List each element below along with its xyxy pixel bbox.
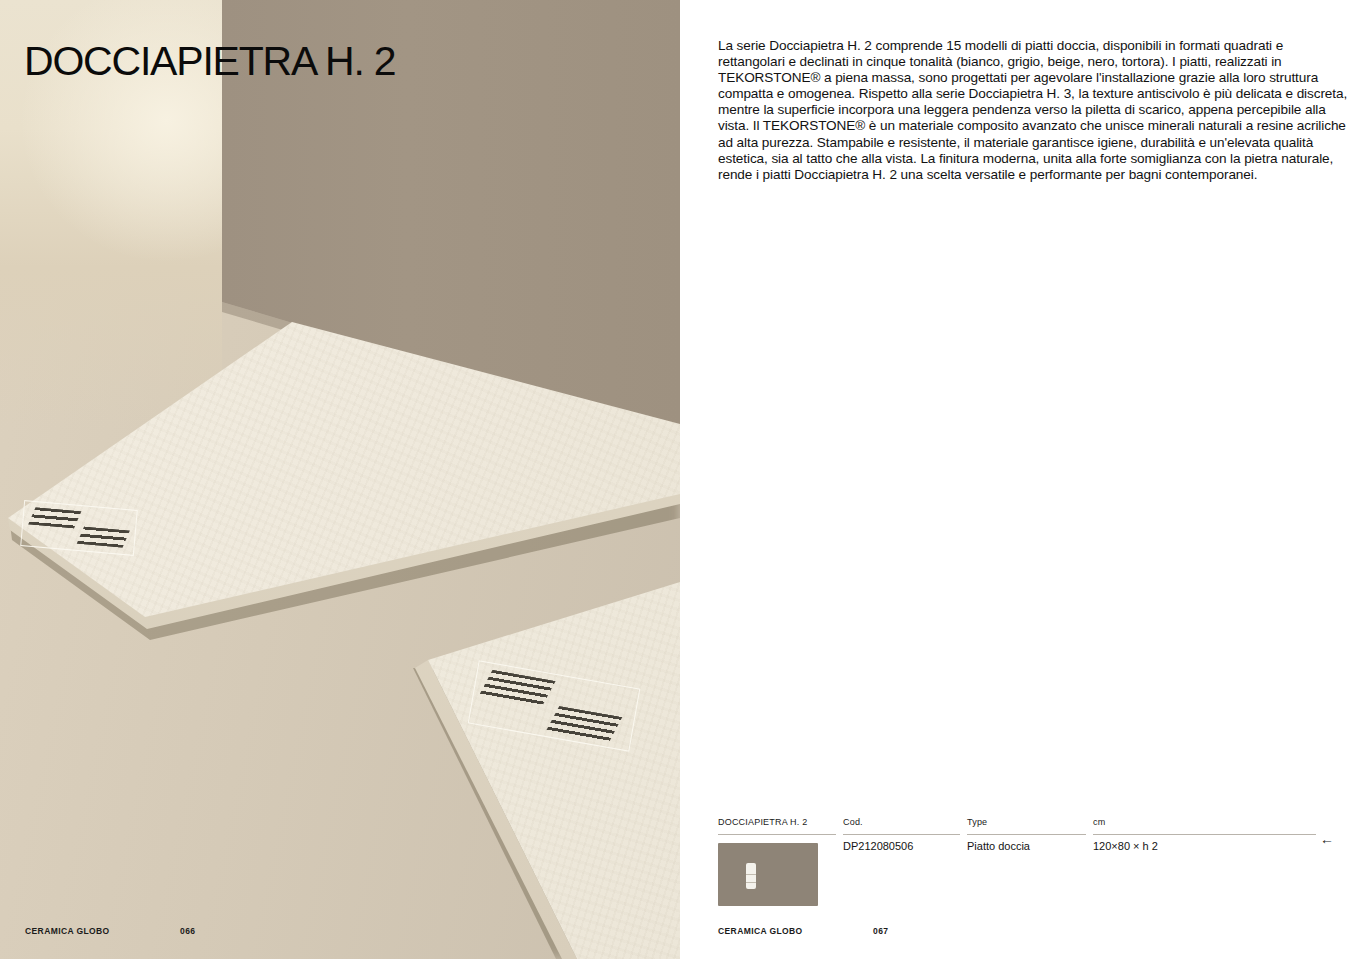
table-header-row: DOCCIAPIETRA H. 2 Cod. Type cm — [718, 817, 1316, 835]
product-table: DOCCIAPIETRA H. 2 Cod. Type cm DP2120805… — [718, 817, 1316, 852]
shower-room-photo — [0, 0, 680, 959]
page-number: 067 — [873, 926, 888, 936]
page-number: 066 — [180, 926, 195, 936]
drain-grate-1-icon — [20, 500, 138, 556]
drain-slats — [546, 706, 622, 741]
product-size: 120×80 × h 2 — [1093, 840, 1316, 852]
footer-right: CERAMICA GLOBO 067 — [718, 926, 803, 936]
series-description: La serie Docciapietra H. 2 comprende 15 … — [718, 38, 1350, 183]
drain-slats — [480, 670, 556, 705]
table-row: DP212080506 Piatto doccia 120×80 × h 2 — [718, 840, 1316, 852]
col-header-cod: Cod. — [843, 817, 960, 835]
swatch-cell — [718, 840, 836, 852]
brand-name: CERAMICA GLOBO — [25, 926, 110, 936]
page-title: DOCCIAPIETRA H. 2 — [24, 39, 395, 84]
drain-slats — [28, 507, 81, 528]
col-header-type: Type — [967, 817, 1086, 835]
back-arrow-icon[interactable]: ← — [1320, 832, 1334, 846]
product-swatch — [718, 843, 818, 906]
swatch-drain-icon — [746, 863, 756, 889]
footer-left: CERAMICA GLOBO 066 — [25, 926, 110, 936]
drain-slats — [77, 526, 130, 547]
col-header-cm: cm — [1093, 817, 1316, 835]
catalog-spread: DOCCIAPIETRA H. 2 La serie Docciapietra … — [0, 0, 1356, 959]
product-code: DP212080506 — [843, 840, 960, 852]
product-type: Piatto doccia — [967, 840, 1086, 852]
col-header-series: DOCCIAPIETRA H. 2 — [718, 817, 836, 835]
brand-name: CERAMICA GLOBO — [718, 926, 803, 936]
